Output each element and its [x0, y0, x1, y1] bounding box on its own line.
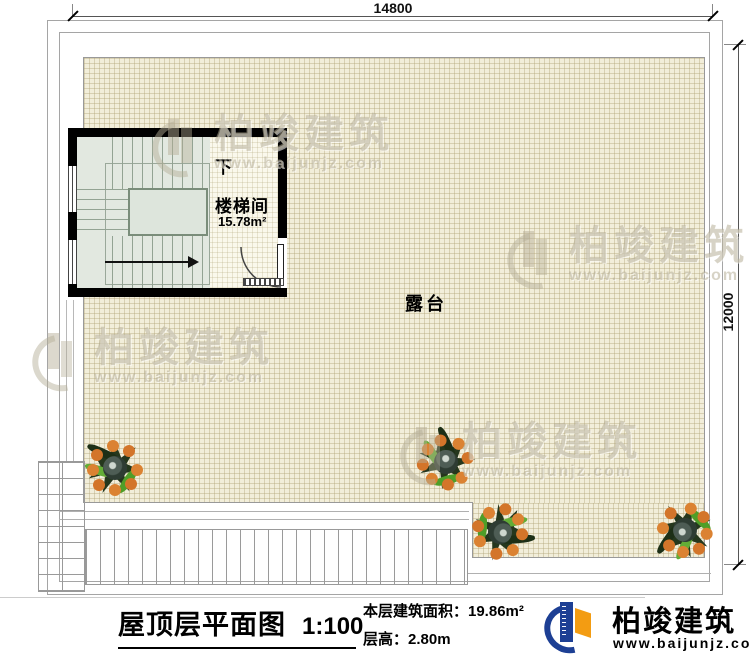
potted-plant [87, 440, 143, 496]
floor-plan-canvas: 14800 12000 露台 下 楼梯间 [0, 0, 750, 667]
floor-height-text: 层高：2.80m [363, 628, 451, 649]
plant-fruits [109, 462, 121, 474]
parapet-step-line [468, 573, 711, 574]
stair-direction-arrowhead [188, 256, 199, 268]
side-roof-divider [62, 461, 63, 592]
window [68, 166, 77, 212]
potted-plant [653, 498, 718, 563]
brand-logo-building [560, 602, 573, 642]
stairwell-room: 下 楼梯间 15.78m² [68, 128, 287, 297]
lower-roof-hatch [85, 529, 468, 585]
brand-url: www.baijunjz.com [613, 635, 750, 651]
dimension-line-right [738, 45, 739, 565]
terrace-label: 露台 [405, 290, 447, 316]
stair-treads-upper [112, 137, 210, 189]
window [68, 240, 77, 284]
brand-block: 柏竣建筑 www.baijunjz.com [542, 597, 750, 663]
floor-area-text: 本层建筑面积：19.86m² [363, 600, 524, 621]
parapet-step-line [59, 511, 469, 512]
drawing-scale: 1:100 [302, 613, 363, 641]
drawing-title-group: 屋顶层平面图 1:100 [118, 603, 356, 649]
brand-name: 柏竣建筑 [612, 598, 736, 640]
stair-direction-arrow [105, 261, 190, 263]
dimension-label-top: 14800 [73, 0, 713, 16]
stairwell-area: 15.78m² [218, 214, 266, 229]
roof-edge-line [66, 300, 67, 461]
stair-winders [77, 189, 128, 236]
roof-edge-line [73, 300, 74, 461]
door-sill [243, 278, 284, 286]
dimension-line-top [73, 16, 713, 17]
stair-direction-label: 下 [215, 153, 232, 178]
dimension-label-right: 12000 [720, 272, 736, 352]
parapet-step-line [59, 519, 469, 520]
drawing-title: 屋顶层平面图 [118, 603, 286, 642]
stair-landing [128, 188, 208, 236]
terrace-edge-line [83, 502, 473, 503]
